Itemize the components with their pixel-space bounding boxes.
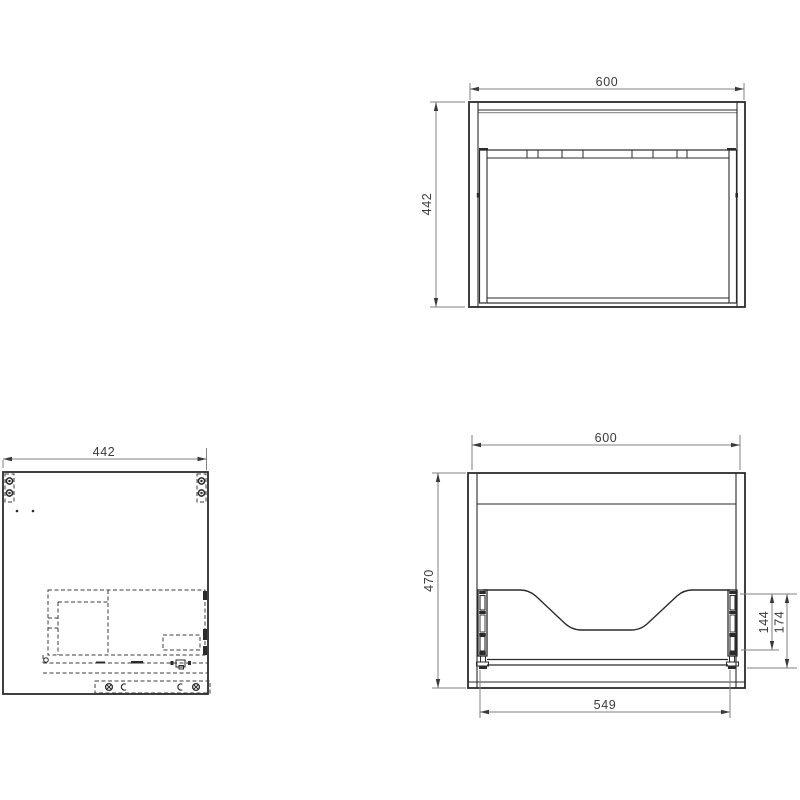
dim-width-600: 600: [472, 431, 740, 470]
fitting-mark: [131, 661, 143, 664]
dim-label-height: 470: [422, 569, 436, 592]
slide-hidden-outline: [163, 635, 200, 650]
bottom-fittings-hidden: [43, 655, 210, 693]
rail-slot: [480, 596, 485, 611]
dimension-arrow: [770, 641, 774, 650]
view-cabinet-back-top: 600 442: [419, 60, 759, 325]
rail-block: [729, 591, 736, 594]
slide-end-block: [203, 591, 207, 600]
cabinet-carcass: [468, 473, 745, 688]
clip-icon: [121, 684, 125, 690]
dimension-arrow: [198, 457, 207, 461]
rail-slot: [480, 615, 485, 632]
dimension-arrow: [735, 87, 744, 91]
dim-label-depth: 442: [93, 445, 116, 459]
rail-foot-block: [479, 666, 487, 669]
dim-label-width: 600: [595, 431, 618, 445]
dimension-arrow: [436, 679, 440, 688]
rail-block: [479, 633, 486, 636]
rail-block: [729, 652, 736, 656]
screw-slot: [200, 480, 202, 482]
rail-block: [479, 652, 486, 656]
wall-bracket-left: [5, 474, 14, 502]
drawer-back-cutout: [483, 590, 730, 630]
rail-foot: [727, 662, 739, 666]
fitting-mark: [96, 662, 105, 664]
dimension-arrow: [785, 659, 789, 668]
dimension-arrow: [731, 443, 740, 447]
rail-slot: [730, 637, 735, 652]
rail-foot: [730, 656, 735, 662]
dimension-arrow: [770, 594, 774, 603]
dim-height-442: 442: [420, 102, 465, 307]
dimension-arrow: [470, 87, 479, 91]
slide-end-block: [203, 629, 207, 640]
screw-slot: [8, 480, 10, 482]
slide-hidden-outline: [48, 590, 205, 655]
dimension-arrow: [785, 594, 789, 603]
bottom-rail: [487, 660, 728, 666]
screw-slot: [8, 492, 10, 494]
screw-slot: [200, 492, 202, 494]
rail-block: [729, 633, 736, 636]
dimension-arrow: [434, 102, 438, 111]
dim-label-rail-outer: 174: [773, 611, 787, 634]
dowel-mark: [16, 510, 19, 513]
rail-foot-block: [728, 666, 736, 669]
rail-block: [479, 611, 486, 614]
drawer-box-outline: [480, 150, 737, 303]
dim-width-600: 600: [470, 75, 744, 100]
cabinet-carcass: [469, 102, 745, 307]
dimension-arrow: [480, 710, 489, 714]
rail-block: [479, 591, 486, 594]
rail-foot: [481, 656, 486, 662]
view-cabinet-side: 442: [0, 440, 230, 710]
cam-lock-icon: [193, 684, 200, 691]
technical-drawing-canvas: 600 442: [0, 0, 800, 800]
rail-foot: [477, 662, 489, 666]
drawer-slide-hidden: [48, 590, 207, 655]
rail-slot: [730, 615, 735, 632]
clip-icon: [44, 658, 49, 663]
slide-end-block: [203, 646, 207, 655]
view-cabinet-front: 600 470: [419, 430, 800, 730]
drawer-slide-left: [477, 590, 489, 669]
dim-height-470: 470: [422, 473, 466, 688]
top-rail-joints: [487, 150, 729, 158]
carcass-outline: [469, 102, 745, 307]
dimension-arrow: [436, 473, 440, 482]
rail-slot: [730, 596, 735, 611]
dimension-arrow: [3, 457, 12, 461]
side-tick: [477, 193, 480, 198]
side-tick: [735, 193, 738, 198]
dim-label-rail-inner: 144: [757, 611, 771, 634]
rail-slot: [480, 637, 485, 652]
side-panel-outline: [3, 472, 208, 694]
rail-outline: [478, 590, 487, 656]
wall-bracket-right: [197, 474, 206, 502]
dim-inner-549: 549: [480, 670, 730, 718]
carcass-outline: [468, 473, 745, 688]
clip-icon: [178, 684, 182, 690]
cam-lock-icon: [106, 684, 113, 691]
fitting-mark: [188, 661, 191, 665]
dimension-arrow: [434, 298, 438, 307]
dimension-arrow: [721, 710, 730, 714]
rail-block: [729, 611, 736, 614]
dowel-mark: [32, 510, 35, 513]
dim-label-height: 442: [420, 193, 434, 216]
dim-depth-442: 442: [3, 445, 207, 470]
fitting-mark: [171, 661, 174, 665]
dimension-arrow: [472, 443, 481, 447]
dim-label-inner-width: 549: [594, 698, 617, 712]
drawer-box: [477, 148, 738, 303]
dim-label-width: 600: [596, 75, 619, 89]
drawer-slide-right: [727, 590, 739, 669]
